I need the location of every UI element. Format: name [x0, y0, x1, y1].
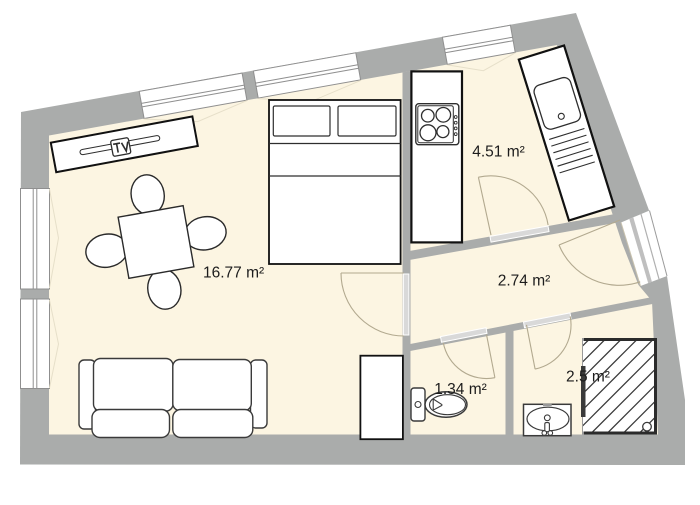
svg-text:16.77 m²: 16.77 m² [203, 264, 264, 281]
svg-text:2.74 m²: 2.74 m² [498, 273, 551, 290]
svg-text:2.5 m²: 2.5 m² [566, 369, 610, 386]
svg-text:1.34 m²: 1.34 m² [434, 381, 487, 398]
svg-text:4.51 m²: 4.51 m² [472, 143, 525, 160]
